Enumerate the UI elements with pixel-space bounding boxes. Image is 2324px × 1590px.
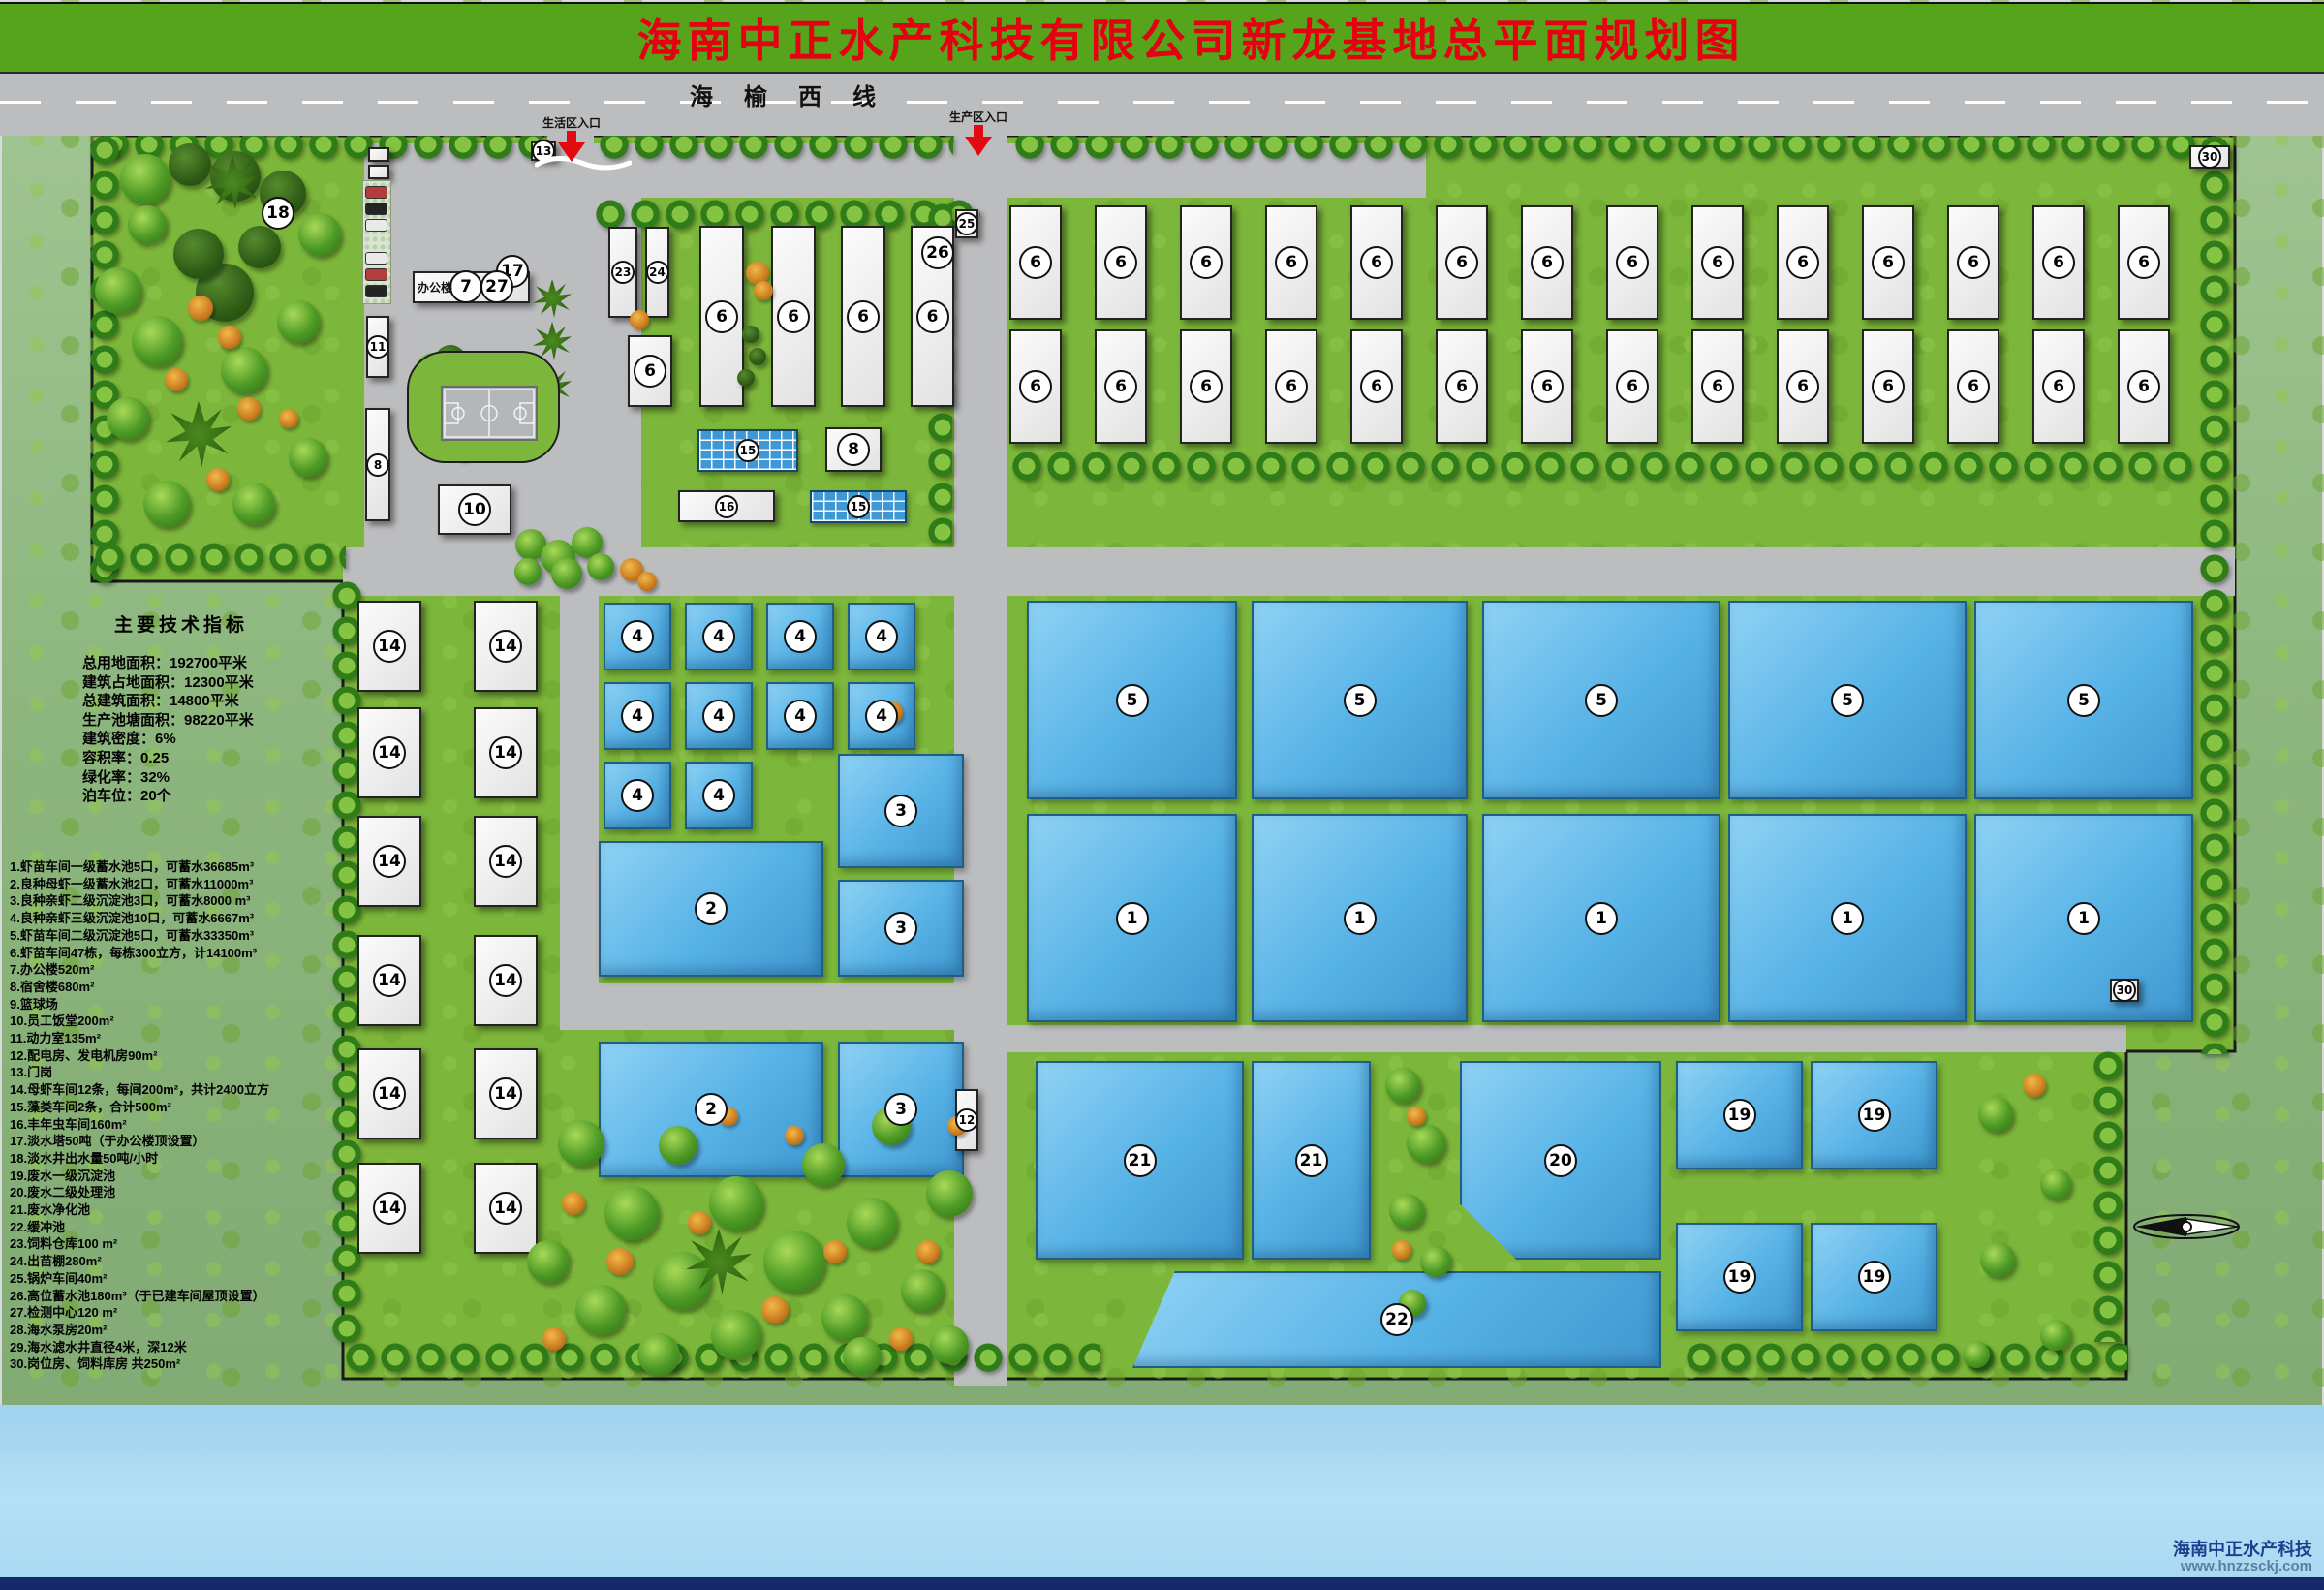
number-marker-25: 25 xyxy=(955,212,978,235)
number-marker-10: 10 xyxy=(458,493,491,526)
tree-hedge xyxy=(92,543,346,577)
number-marker-2: 2 xyxy=(695,1093,728,1126)
road xyxy=(560,983,1007,1030)
arrow-stem xyxy=(567,131,576,142)
legend-item: 19.废水一级沉淀池 xyxy=(10,1168,358,1185)
watermark-company: 海南中正水产科技 xyxy=(2173,1541,2312,1558)
number-marker-2: 2 xyxy=(695,892,728,925)
legend-item: 14.母虾车间12条，每间200m²，共计2400立方 xyxy=(10,1081,358,1099)
legend-item: 16.丰年虫车间160m² xyxy=(10,1116,358,1134)
tree-icon xyxy=(173,229,224,279)
number-marker-4: 4 xyxy=(621,779,654,812)
tree-icon xyxy=(132,316,182,366)
tree-hedge xyxy=(87,136,122,583)
entrance-living-label: 生活区入口 xyxy=(542,114,601,131)
shrub-icon xyxy=(206,468,230,491)
number-marker-14: 14 xyxy=(489,1192,522,1225)
compass-icon xyxy=(2129,1194,2244,1256)
parked-car xyxy=(365,252,387,265)
number-marker-4: 4 xyxy=(784,620,817,653)
shrub-icon xyxy=(218,326,241,349)
legend-item: 29.海水滤水井直径4米，深12米 xyxy=(10,1339,358,1356)
shrub-icon xyxy=(889,1327,913,1351)
number-marker-6: 6 xyxy=(1275,370,1308,403)
legend-item: 28.海水泵房20m² xyxy=(10,1322,358,1339)
entrance-production-label: 生产区入口 xyxy=(949,109,1007,125)
number-marker-14: 14 xyxy=(489,630,522,663)
number-marker-6: 6 xyxy=(2042,370,2075,403)
tree-icon xyxy=(277,300,320,343)
legend-item: 1.虾苗车间一级蓄水池5口，可蓄水36685m³ xyxy=(10,858,358,876)
indicator-line: 建筑占地面积：12300平米 xyxy=(82,673,320,693)
tree-icon xyxy=(514,558,542,585)
legend-item: 26.高位蓄水池180m³（于已建车间屋顶设置） xyxy=(10,1288,358,1305)
tree-icon xyxy=(737,369,755,387)
number-marker-6: 6 xyxy=(1360,246,1393,279)
indicator-line: 绿化率：32% xyxy=(82,768,320,788)
number-marker-6: 6 xyxy=(2127,370,2160,403)
building-misc xyxy=(368,165,389,179)
site-plan-canvas: 4444444444332235555511111212120191919192… xyxy=(0,0,2324,1590)
title-band: 海南中正水产科技有限公司新龙基地总平面规划图 xyxy=(0,2,2324,74)
road-name-label: 海榆西线 xyxy=(690,78,907,111)
number-marker-4: 4 xyxy=(702,700,735,733)
parked-car xyxy=(365,203,387,215)
number-marker-14: 14 xyxy=(373,736,406,769)
indicator-line: 总建筑面积：14800平米 xyxy=(82,692,320,711)
number-marker-6: 6 xyxy=(1275,246,1308,279)
shrub-icon xyxy=(237,397,261,421)
parked-car xyxy=(365,268,387,281)
tree-icon xyxy=(1420,1246,1451,1277)
number-marker-1: 1 xyxy=(1585,902,1618,935)
tree-icon xyxy=(1389,1194,1424,1229)
number-marker-6: 6 xyxy=(1445,370,1478,403)
tree-icon xyxy=(1385,1068,1420,1103)
number-marker-1: 1 xyxy=(1116,902,1149,935)
tree-icon xyxy=(169,143,211,186)
number-marker-6: 6 xyxy=(1957,370,1990,403)
tree-icon xyxy=(763,1231,825,1293)
number-marker-23: 23 xyxy=(611,261,635,284)
legend-item: 11.动力室135m² xyxy=(10,1030,358,1047)
number-marker-19: 19 xyxy=(1723,1099,1756,1132)
number-marker-14: 14 xyxy=(489,845,522,878)
number-marker-6: 6 xyxy=(1360,370,1393,403)
number-marker-19: 19 xyxy=(1858,1261,1891,1294)
tree-icon xyxy=(2040,1169,2071,1200)
shrub-icon xyxy=(542,1327,566,1351)
number-marker-6: 6 xyxy=(1872,370,1905,403)
bottom-navy-strip xyxy=(0,1577,2324,1590)
legend-item: 30.岗位房、饲料库房 共250m² xyxy=(10,1356,358,1373)
tree-icon xyxy=(558,1120,604,1167)
tree-icon xyxy=(120,154,170,204)
number-marker-30: 30 xyxy=(2198,145,2221,169)
tree-icon xyxy=(575,1285,626,1335)
legend-item: 9.篮球场 xyxy=(10,996,358,1013)
number-marker-21: 21 xyxy=(1124,1144,1157,1177)
number-marker-6: 6 xyxy=(1019,246,1052,279)
tree-icon xyxy=(847,1198,897,1248)
number-marker-22: 22 xyxy=(1380,1303,1413,1336)
basketball-court xyxy=(441,386,538,441)
down-arrow-icon xyxy=(558,142,585,162)
number-marker-14: 14 xyxy=(373,845,406,878)
building-misc xyxy=(368,147,389,162)
legend-item: 6.虾苗车间47栋，每栋300立方，计14100m³ xyxy=(10,945,358,962)
number-marker-6: 6 xyxy=(916,300,949,333)
legend-item: 2.良种母虾一级蓄水池2口，可蓄水11000m³ xyxy=(10,876,358,893)
office-building-label: 办公楼 xyxy=(418,279,452,296)
legend-item: 20.废水二级处理池 xyxy=(10,1184,358,1201)
shrub-icon xyxy=(688,1211,711,1234)
number-marker-4: 4 xyxy=(702,779,735,812)
page-title: 海南中正水产科技有限公司新龙基地总平面规划图 xyxy=(579,6,1746,70)
tree-icon xyxy=(166,401,232,467)
tree-icon xyxy=(1978,1097,2013,1132)
tree-icon xyxy=(232,483,275,525)
number-marker-12: 12 xyxy=(955,1108,978,1132)
indicators-heading: 主要技术指标 xyxy=(114,610,320,637)
number-marker-4: 4 xyxy=(865,700,898,733)
tree-icon xyxy=(95,267,141,314)
legend-item: 10.员工饭堂200m² xyxy=(10,1013,358,1030)
number-marker-15: 15 xyxy=(847,495,870,518)
tree-icon xyxy=(221,347,267,393)
number-marker-14: 14 xyxy=(373,964,406,997)
legend-item: 13.门岗 xyxy=(10,1064,358,1081)
tree-icon xyxy=(1407,1124,1445,1163)
legend-item: 7.办公楼520m² xyxy=(10,961,358,979)
number-marker-6: 6 xyxy=(1445,246,1478,279)
entrance-production-area: 生产区入口 xyxy=(949,109,1007,156)
number-marker-3: 3 xyxy=(884,912,917,945)
legend-item: 8.宿舍楼680m² xyxy=(10,979,358,996)
number-marker-6: 6 xyxy=(1701,370,1734,403)
tree-icon xyxy=(298,213,341,256)
legend-panel: 1.虾苗车间一级蓄水池5口，可蓄水36685m³2.良种母虾一级蓄水池2口，可蓄… xyxy=(10,858,358,1373)
number-marker-6: 6 xyxy=(1616,370,1649,403)
shrub-icon xyxy=(823,1240,847,1263)
number-marker-6: 6 xyxy=(1190,370,1223,403)
number-marker-6: 6 xyxy=(1701,246,1734,279)
legend-item: 23.饲料仓库100 m² xyxy=(10,1235,358,1253)
tree-icon xyxy=(587,553,614,580)
number-marker-6: 6 xyxy=(1786,246,1819,279)
number-marker-14: 14 xyxy=(489,736,522,769)
number-marker-6: 6 xyxy=(1104,246,1137,279)
shrub-icon xyxy=(637,572,657,591)
tree-icon xyxy=(128,205,167,244)
number-marker-4: 4 xyxy=(621,620,654,653)
indicator-line: 建筑密度：6% xyxy=(82,730,320,749)
shrub-icon xyxy=(1407,1107,1426,1126)
watermark-website: www.hnzzsckj.com xyxy=(2173,1558,2312,1575)
number-marker-4: 4 xyxy=(621,700,654,733)
indicator-line: 总用地面积：192700平米 xyxy=(82,654,320,673)
number-marker-6: 6 xyxy=(1531,246,1564,279)
legend-item: 3.良种亲虾二级沉淀池3口，可蓄水8000 m³ xyxy=(10,892,358,910)
number-marker-14: 14 xyxy=(373,1077,406,1110)
road xyxy=(560,596,599,1030)
number-marker-27: 27 xyxy=(480,270,513,303)
tree-icon xyxy=(659,1126,697,1165)
legend-item: 27.检测中心120 m² xyxy=(10,1304,358,1322)
number-marker-4: 4 xyxy=(865,620,898,653)
shrub-icon xyxy=(785,1126,804,1145)
number-marker-6: 6 xyxy=(1019,370,1052,403)
number-marker-14: 14 xyxy=(489,1077,522,1110)
number-marker-19: 19 xyxy=(1723,1261,1756,1294)
number-marker-6: 6 xyxy=(1786,370,1819,403)
legend-item: 22.缓冲池 xyxy=(10,1219,358,1236)
tree-icon xyxy=(802,1143,845,1186)
tree-icon xyxy=(143,481,190,527)
number-marker-7: 7 xyxy=(449,270,482,303)
indicator-line: 容积率：0.25 xyxy=(82,749,320,768)
arrow-stem xyxy=(974,125,983,137)
tree-icon xyxy=(749,348,766,365)
shrub-icon xyxy=(2023,1074,2046,1097)
legend-item: 25.锅炉车间40m² xyxy=(10,1270,358,1288)
shrub-icon xyxy=(188,296,213,321)
shrub-icon xyxy=(562,1192,585,1215)
number-marker-8: 8 xyxy=(366,453,389,477)
number-marker-5: 5 xyxy=(1831,684,1864,717)
tree-icon xyxy=(527,1240,570,1283)
tree-icon xyxy=(1963,1341,1990,1368)
tree-icon xyxy=(107,397,149,440)
number-marker-1: 1 xyxy=(1344,902,1377,935)
number-marker-20: 20 xyxy=(1544,1144,1577,1177)
tree-hedge xyxy=(593,200,980,229)
number-marker-4: 4 xyxy=(702,620,735,653)
legend-item: 12.配电房、发电机房90m² xyxy=(10,1047,358,1065)
tree-icon xyxy=(551,558,582,589)
number-marker-6: 6 xyxy=(634,355,666,388)
number-marker-6: 6 xyxy=(1872,246,1905,279)
number-marker-3: 3 xyxy=(884,795,917,827)
number-marker-14: 14 xyxy=(373,630,406,663)
number-marker-1: 1 xyxy=(2067,902,2100,935)
indicator-line: 泊车位：20个 xyxy=(82,787,320,806)
shrub-icon xyxy=(279,409,298,428)
tree-icon xyxy=(238,226,281,268)
number-marker-6: 6 xyxy=(777,300,810,333)
tree-hedge xyxy=(2091,1051,2125,1342)
parked-car xyxy=(365,186,387,199)
number-marker-16: 16 xyxy=(715,495,738,518)
sea-area: 南中国海 xyxy=(0,1405,2324,1579)
shrub-icon xyxy=(606,1248,634,1275)
legend-item: 17.淡水塔50吨（于办公楼顶设置） xyxy=(10,1133,358,1150)
tree-icon xyxy=(653,1252,711,1310)
tree-icon xyxy=(901,1269,944,1312)
number-marker-18: 18 xyxy=(262,197,294,230)
road xyxy=(1007,1025,2126,1052)
indicator-line: 生产池塘面积：98220平米 xyxy=(82,711,320,731)
tree-icon xyxy=(637,1333,680,1376)
number-marker-8: 8 xyxy=(837,433,870,466)
entrance-living-area: 生活区入口 xyxy=(542,114,601,162)
number-marker-19: 19 xyxy=(1858,1099,1891,1132)
legend-item: 24.出苗棚280m² xyxy=(10,1253,358,1270)
number-marker-6: 6 xyxy=(2042,246,2075,279)
number-marker-21: 21 xyxy=(1295,1144,1328,1177)
number-marker-6: 6 xyxy=(1531,370,1564,403)
tree-icon xyxy=(711,1310,761,1360)
number-marker-5: 5 xyxy=(1585,684,1618,717)
shrub-icon xyxy=(916,1240,940,1263)
shrub-icon xyxy=(1392,1240,1411,1260)
tree-icon xyxy=(289,438,327,477)
legend-item: 5.虾苗车间二级沉淀池5口，可蓄水33350m³ xyxy=(10,927,358,945)
number-marker-6: 6 xyxy=(705,300,738,333)
legend-item: 15.藻类车间2条，合计500m² xyxy=(10,1099,358,1116)
number-marker-6: 6 xyxy=(1616,246,1649,279)
number-marker-3: 3 xyxy=(884,1093,917,1126)
watermark: 海南中正水产科技 www.hnzzsckj.com xyxy=(2173,1541,2312,1575)
tree-hedge xyxy=(2197,136,2234,1054)
number-marker-1: 1 xyxy=(1831,902,1864,935)
number-marker-6: 6 xyxy=(847,300,880,333)
number-marker-14: 14 xyxy=(373,1192,406,1225)
shrub-icon xyxy=(165,368,188,391)
down-arrow-icon xyxy=(965,137,992,156)
number-marker-24: 24 xyxy=(646,261,669,284)
tree-icon xyxy=(843,1337,882,1376)
number-marker-30: 30 xyxy=(2113,979,2136,1002)
number-marker-5: 5 xyxy=(1116,684,1149,717)
legend-item: 4.良种亲虾三级沉淀池10口，可蓄水6667m³ xyxy=(10,910,358,927)
legend-item: 21.废水净化池 xyxy=(10,1201,358,1219)
highway-road: 海榆西线 xyxy=(0,72,2324,136)
shrub-icon xyxy=(761,1296,789,1324)
shrub-icon xyxy=(630,310,649,329)
number-marker-6: 6 xyxy=(1190,246,1223,279)
number-marker-15: 15 xyxy=(736,439,759,462)
tree-icon xyxy=(1980,1242,2015,1277)
parked-car xyxy=(365,285,387,297)
tree-icon xyxy=(930,1325,969,1364)
number-marker-6: 6 xyxy=(2127,246,2160,279)
road-centerline xyxy=(0,101,2324,104)
tree-hedge xyxy=(1009,452,2197,481)
tree-icon xyxy=(604,1186,659,1240)
number-marker-5: 5 xyxy=(2067,684,2100,717)
number-marker-14: 14 xyxy=(489,964,522,997)
tree-icon xyxy=(742,326,759,343)
number-marker-5: 5 xyxy=(1344,684,1377,717)
tree-icon xyxy=(821,1294,868,1341)
number-marker-4: 4 xyxy=(784,700,817,733)
number-marker-6: 6 xyxy=(1957,246,1990,279)
parked-car xyxy=(365,219,387,232)
indicators-list: 总用地面积：192700平米建筑占地面积：12300平米总建筑面积：14800平… xyxy=(0,654,320,806)
number-marker-11: 11 xyxy=(366,335,389,359)
legend-item: 18.淡水井出水量50吨/小时 xyxy=(10,1150,358,1168)
tree-icon xyxy=(926,1170,973,1217)
indicators-panel: 主要技术指标 总用地面积：192700平米建筑占地面积：12300平米总建筑面积… xyxy=(0,610,320,806)
shrub-icon xyxy=(754,281,773,300)
number-marker-26: 26 xyxy=(921,236,954,269)
number-marker-6: 6 xyxy=(1104,370,1137,403)
court-markings-icon xyxy=(443,388,536,439)
tree-icon xyxy=(2040,1320,2071,1351)
tree-icon xyxy=(709,1176,763,1231)
